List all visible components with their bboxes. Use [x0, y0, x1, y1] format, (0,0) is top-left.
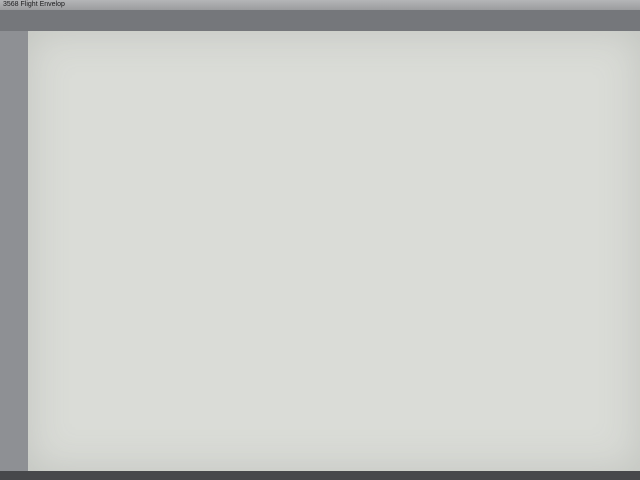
desktop-band: [0, 10, 640, 31]
bottom-band: [0, 471, 640, 480]
window-title: 3568 Flight Envelop: [3, 1, 65, 8]
drawing-sheet: [28, 31, 640, 471]
window-titlebar[interactable]: 3568 Flight Envelop: [0, 0, 640, 10]
